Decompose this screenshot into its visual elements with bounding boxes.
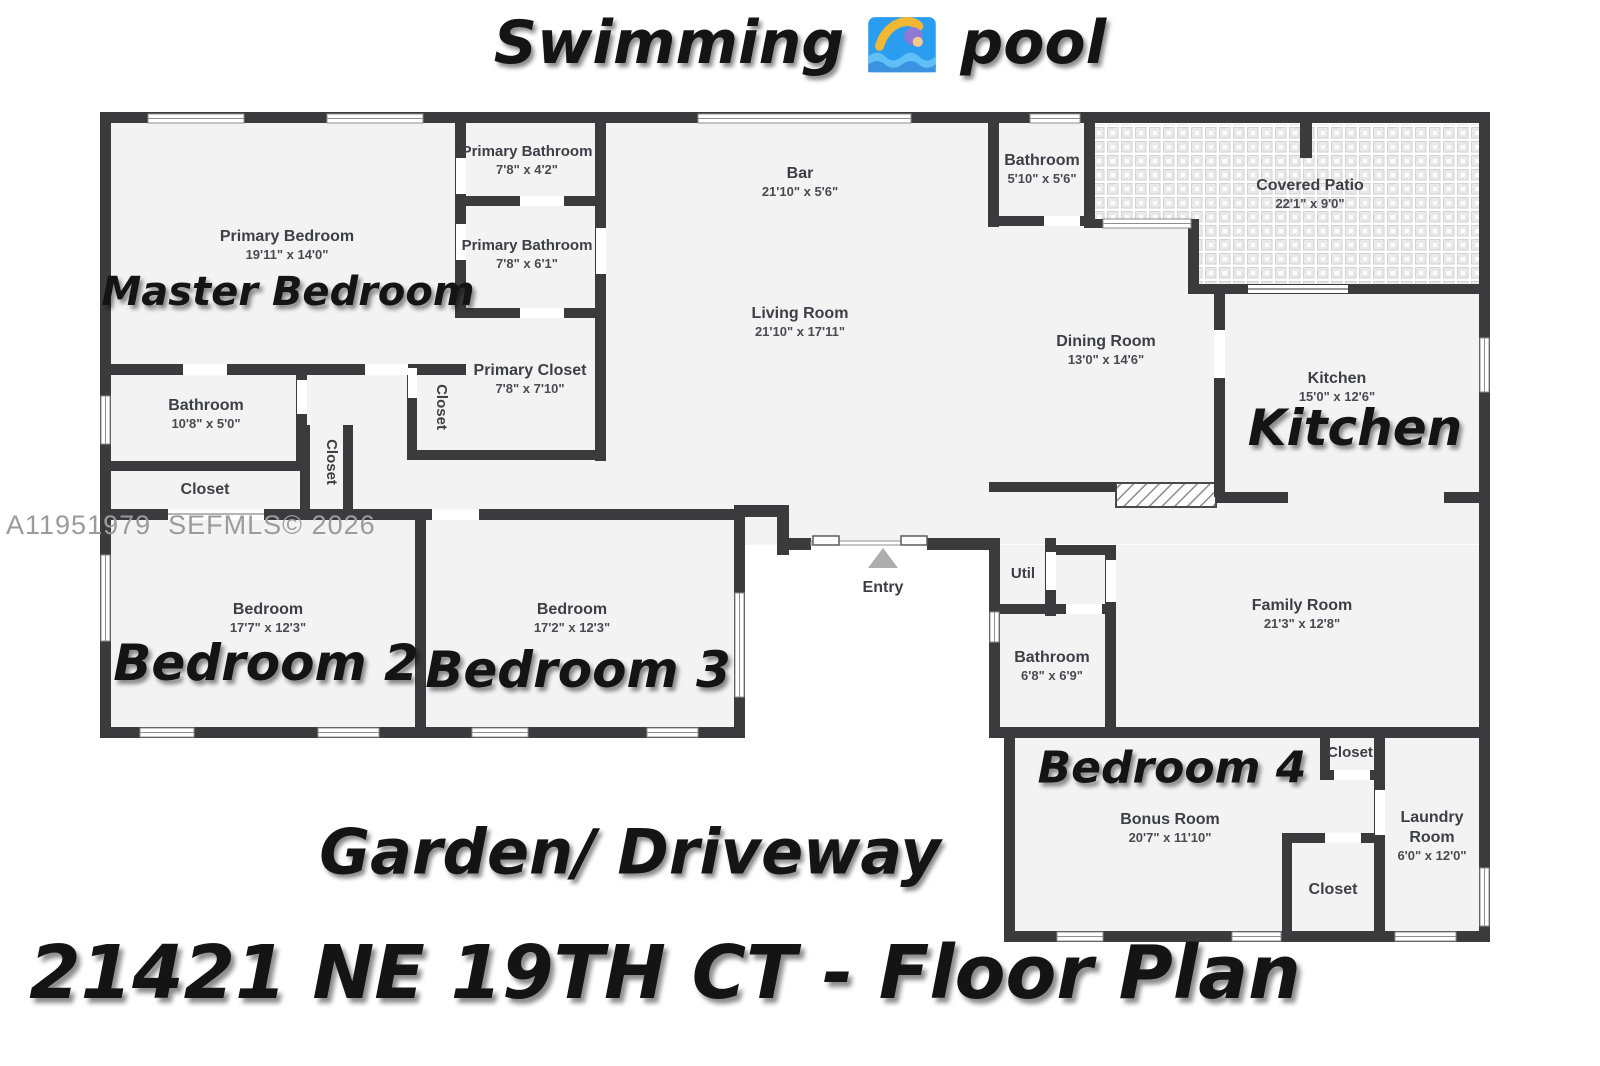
dims-laundry: 6'0" x 12'0" [1397, 848, 1466, 863]
dims-primary-bedroom: 19'11" x 14'0" [246, 247, 329, 262]
address-floor-plan-title: 21421 NE 19TH CT - Floor Plan [20, 930, 1310, 1016]
label-covered-patio: Covered Patio [1256, 177, 1364, 194]
label-primary-closet: Primary Closet [474, 362, 588, 379]
annotation-kitchen: Kitchen [1248, 399, 1463, 457]
dims-bedroom3: 17'2" x 12'3" [534, 620, 610, 635]
dims-dining-room: 13'0" x 14'6" [1068, 352, 1144, 367]
label-hall-closet-v1: Closet [323, 439, 340, 485]
label-primary-bathroom-2: Primary Bathroom [462, 237, 593, 254]
title-pool: pool [960, 8, 1106, 78]
entry-arrow-icon [868, 548, 898, 568]
label-entry: Entry [863, 579, 904, 596]
swimmer-icon [866, 11, 938, 75]
label-laundry-1: Laundry [1400, 809, 1463, 826]
dims-mid-bathroom: 6'8" x 6'9" [1021, 668, 1083, 683]
annotation-bedroom2: Bedroom 2 [113, 634, 418, 692]
annotation-master-bedroom: Master Bedroom [101, 269, 474, 315]
dims-hall-bathroom: 10'8" x 5'0" [171, 416, 240, 431]
dims-top-bathroom: 5'10" x 5'6" [1007, 171, 1076, 186]
label-bedroom3: Bedroom [537, 601, 607, 618]
label-dining-room: Dining Room [1056, 333, 1156, 350]
label-bar: Bar [787, 165, 814, 182]
dims-covered-patio: 22'1" x 9'0" [1275, 196, 1344, 211]
label-laundry-closet: Closet [1309, 881, 1359, 898]
floor-plan-page: Primary Bathroom 7'8" x 4'2" Primary Bat… [0, 0, 1600, 1066]
label-hall-closet-v2: Closet [433, 384, 450, 430]
label-top-bathroom: Bathroom [1004, 152, 1080, 169]
dims-bar: 21'10" x 5'6" [762, 184, 838, 199]
annotation-garden-driveway: Garden/ Driveway [319, 816, 940, 889]
label-living-room: Living Room [752, 305, 849, 322]
label-bedroom2: Bedroom [233, 601, 303, 618]
dims-primary-bathroom-1: 7'8" x 4'2" [496, 162, 558, 177]
dims-bonus-room: 20'7" x 11'10" [1129, 830, 1212, 845]
annotation-bedroom4: Bedroom 4 [1038, 743, 1307, 794]
label-kitchen: Kitchen [1308, 370, 1367, 387]
label-laundry-2: Room [1409, 829, 1454, 846]
page-title-swimming-pool: Swimming pool [0, 8, 1600, 78]
label-primary-bathroom-1: Primary Bathroom [462, 143, 593, 160]
label-bonus-room: Bonus Room [1120, 811, 1220, 828]
label-hall-closet: Closet [181, 481, 231, 498]
title-swimming: Swimming [494, 8, 844, 78]
label-primary-bedroom: Primary Bedroom [220, 228, 354, 245]
label-hall-bathroom: Bathroom [168, 397, 244, 414]
label-util: Util [1011, 565, 1035, 582]
label-mid-bathroom: Bathroom [1014, 649, 1090, 666]
dims-primary-bathroom-2: 7'8" x 6'1" [496, 256, 558, 271]
dims-bedroom2: 17'7" x 12'3" [230, 620, 306, 635]
annotation-bedroom3: Bedroom 3 [425, 641, 730, 699]
dims-primary-closet: 7'8" x 7'10" [495, 381, 564, 396]
label-family-room: Family Room [1252, 597, 1352, 614]
hatched-strip [1116, 483, 1216, 507]
mls-watermark: A11951979 SEFMLS© 2026 [6, 510, 376, 541]
dims-family-room: 21'3" x 12'8" [1264, 616, 1340, 631]
label-bedroom4-closet: Closet [1327, 744, 1373, 761]
dims-living-room: 21'10" x 17'11" [755, 324, 845, 339]
